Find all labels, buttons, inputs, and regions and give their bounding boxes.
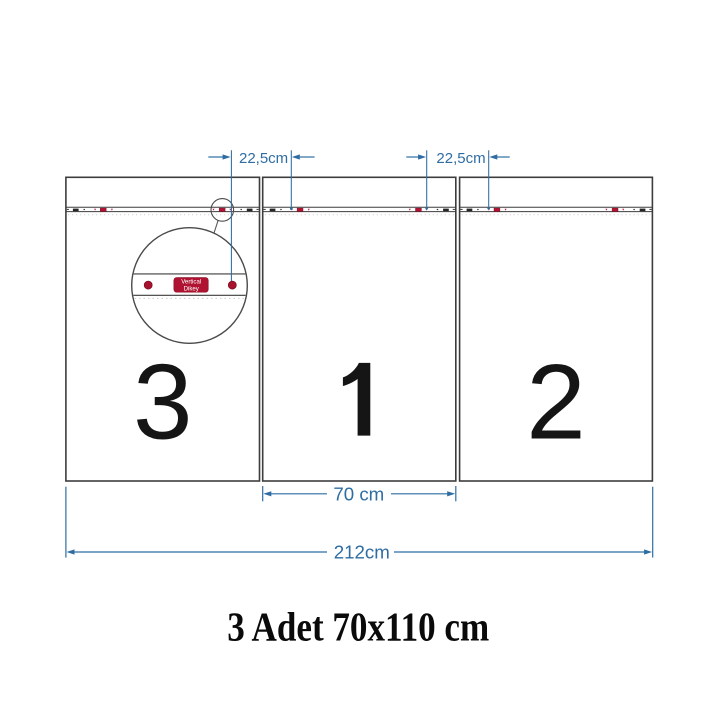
svg-text:212cm: 212cm <box>334 542 390 563</box>
svg-text:70 cm: 70 cm <box>333 483 384 504</box>
svg-text:22,5cm: 22,5cm <box>436 150 485 167</box>
svg-text:3: 3 <box>133 342 193 462</box>
svg-text:2: 2 <box>526 342 586 462</box>
svg-text:3 Adet 70x110 cm: 3 Adet 70x110 cm <box>227 603 489 649</box>
svg-text:Dikey: Dikey <box>184 286 200 293</box>
svg-text:22,5cm: 22,5cm <box>239 150 288 167</box>
svg-text:Vertical: Vertical <box>181 279 201 286</box>
